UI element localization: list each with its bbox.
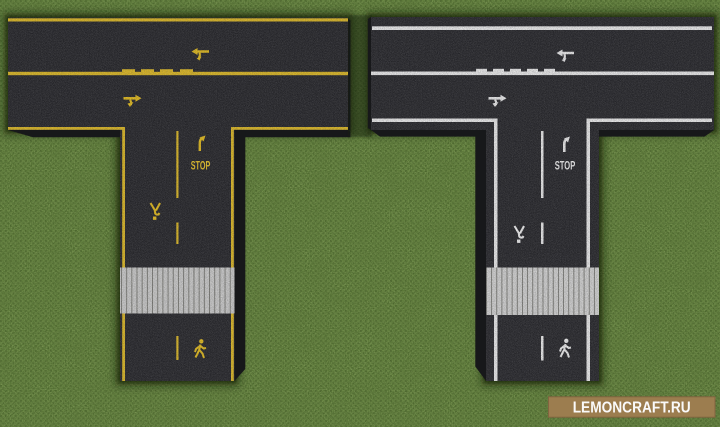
svg-text:LEMONCRAFT.RU: LEMONCRAFT.RU <box>573 400 691 417</box>
